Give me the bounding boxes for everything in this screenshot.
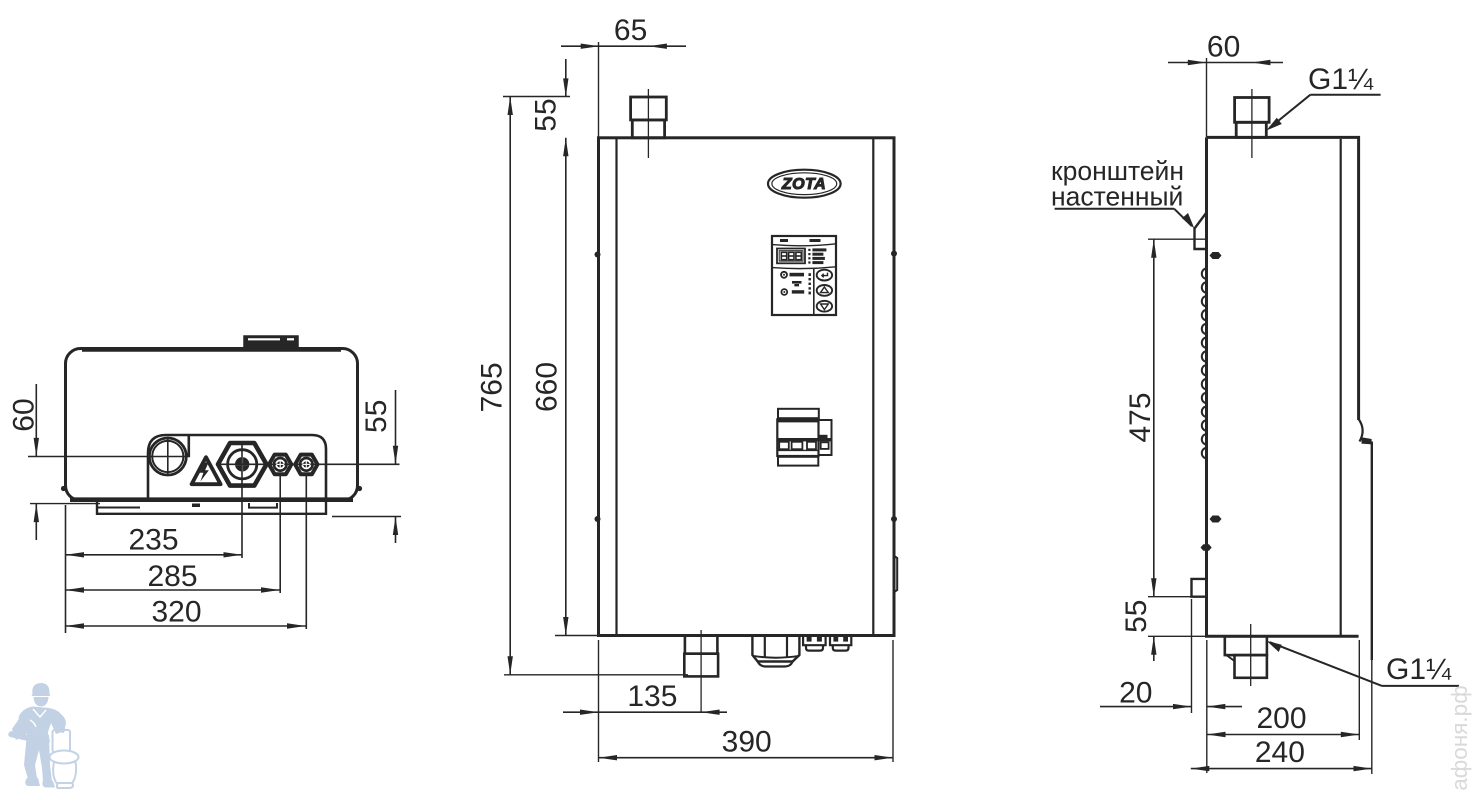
- svg-text:афоня.рф: афоня.рф: [1447, 685, 1472, 790]
- svg-text:240: 240: [1255, 736, 1305, 769]
- svg-text:60: 60: [1207, 31, 1240, 64]
- svg-text:ZOTA: ZOTA: [781, 176, 826, 193]
- svg-text:55: 55: [360, 400, 393, 433]
- svg-text:20: 20: [1119, 677, 1152, 710]
- svg-text:390: 390: [722, 726, 772, 759]
- svg-text:55: 55: [529, 98, 562, 131]
- svg-text:200: 200: [1256, 702, 1306, 735]
- svg-text:660: 660: [531, 362, 564, 412]
- svg-text:60: 60: [7, 398, 40, 431]
- svg-text:135: 135: [627, 680, 677, 713]
- svg-text:235: 235: [128, 524, 178, 557]
- svg-text:765: 765: [475, 362, 508, 412]
- svg-text:285: 285: [147, 560, 197, 593]
- svg-text:G1¼: G1¼: [1308, 63, 1374, 96]
- svg-text:настенный: настенный: [1051, 182, 1183, 212]
- svg-text:55: 55: [1120, 600, 1153, 633]
- svg-text:320: 320: [151, 595, 201, 628]
- svg-text:475: 475: [1124, 392, 1157, 442]
- svg-text:65: 65: [614, 14, 647, 47]
- svg-text:G1¼: G1¼: [1386, 653, 1452, 686]
